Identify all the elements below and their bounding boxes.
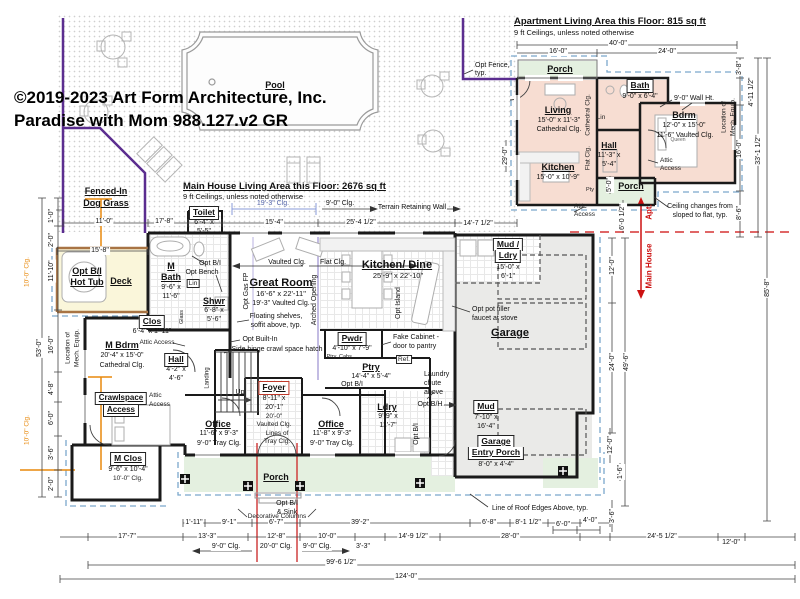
opt-fence-note-2: typ. bbox=[475, 70, 486, 78]
dim-left-6-0: 6'-0" bbox=[48, 410, 56, 426]
flat-clg-note: Flat Clg. bbox=[320, 259, 346, 267]
room-clos: Clos bbox=[139, 315, 165, 329]
floor-plan: ©2019-2023 Art Form Architecture, Inc. P… bbox=[0, 0, 800, 599]
room-shwr: Shwr bbox=[203, 296, 225, 306]
hall-size-1: 4'-2" x bbox=[166, 366, 185, 374]
fake-cabinet-note-2: door to pantry bbox=[393, 343, 436, 351]
room-great-room: Great Room bbox=[250, 277, 313, 289]
dim-top-apt-24: 24'-0" bbox=[657, 48, 677, 56]
room-ldry: Ldry bbox=[377, 402, 397, 412]
attic-access-mbdrm: Attic Access bbox=[139, 339, 174, 346]
room-pwdr: Pwdr bbox=[338, 332, 367, 346]
dim-apt-left-29: 29'-0" bbox=[502, 146, 510, 166]
pool-label: Pool bbox=[265, 80, 285, 90]
dim-row-b-0: 17'-7" bbox=[117, 533, 137, 541]
ceiling-changes-1: Ceiling changes from bbox=[667, 203, 733, 211]
vaulted-clg-note: Vaulted Clg. bbox=[268, 259, 306, 267]
hall-size-2: 4'-6" bbox=[169, 375, 183, 383]
dim-left-3-6: 3'-6" bbox=[48, 445, 56, 461]
great-room-size: 16'-6" x 22'-11" bbox=[256, 290, 306, 298]
great-room-clg: 19'-3" Vaulted Clg. bbox=[252, 300, 309, 308]
fake-cabinet-note-1: Fake Cabinet - bbox=[393, 334, 439, 342]
apt-wall-ht: 9'-0" Wall Ht. bbox=[674, 95, 714, 103]
room-m-bath-1: M bbox=[167, 261, 175, 271]
laundry-chute-2: chute bbox=[424, 380, 441, 388]
lines-of-tray-1: Lines of bbox=[266, 430, 289, 437]
foyer-size-2: 20'-1" bbox=[265, 404, 283, 412]
dim-garage-12-0: 12'-0" bbox=[609, 256, 617, 276]
room-kitchen-dine: Kitchen/ Dine bbox=[362, 259, 432, 271]
apt-pty-note: Pty bbox=[586, 187, 594, 193]
room-office-left: Office bbox=[205, 419, 231, 429]
mud-ldry-size-2: 6'-1" bbox=[501, 273, 515, 281]
room-hot-tub-2: Hot Tub bbox=[70, 277, 103, 287]
dim-apt-porch-6-0: 6'-0 1/2" bbox=[619, 203, 627, 231]
dashed-openings bbox=[455, 235, 586, 455]
loc-mech-left-1: Location of bbox=[64, 332, 71, 364]
ldry-size-1: 9'-9" x bbox=[378, 413, 397, 421]
dim-total-99-6: 99'-6 1/2" bbox=[325, 559, 357, 567]
room-m-clos: M Clos bbox=[110, 452, 146, 466]
opt-builtin-note: Opt Built-In bbox=[242, 336, 277, 344]
dim-right-4-11: 4'-11 1/2" bbox=[748, 77, 756, 108]
attic-access-crawl-2: Access bbox=[149, 401, 170, 408]
mud-size-1: 7'-10" x bbox=[474, 414, 497, 422]
roof-edges-note: Line of Roof Edges Above, typ. bbox=[492, 505, 588, 513]
room-garage-entry-1: Garage bbox=[477, 435, 514, 448]
room-ptry: Ptry bbox=[362, 362, 380, 372]
copyright-line-1: ©2019-2023 Art Form Architecture, Inc. bbox=[14, 88, 327, 107]
mud-ldry-size-1: 15'-0" x bbox=[496, 264, 519, 272]
copyright-line-2: Paradise with Mom 988.127.v2 GR bbox=[14, 111, 288, 130]
dim-garage-24-0: 24'-0" bbox=[609, 352, 617, 372]
foyer-clg-2: Vaulted Clg. bbox=[257, 421, 292, 428]
side-hinge-note: Side hinge crawl space hatch bbox=[231, 346, 322, 354]
attic-access-apt-hall-1: Attic bbox=[660, 157, 673, 164]
apt-queen-bed: Queen bbox=[670, 138, 685, 144]
stairs-landing-label: Landing bbox=[205, 367, 212, 388]
glass-note: Glass bbox=[179, 310, 185, 324]
office-left-size: 11'-6" x 9'-3" bbox=[200, 430, 239, 438]
dim-row-b-8: 3'-3" bbox=[355, 543, 371, 551]
dim-right-16-0: 16'-0" bbox=[736, 139, 744, 159]
arched-opening-note: Arched Opening bbox=[311, 275, 319, 326]
office-left-clg: 9'-0" Tray Clg. bbox=[197, 440, 241, 448]
room-garage: Garage bbox=[491, 327, 529, 339]
dim-right-8-6: 8'-6" bbox=[736, 205, 744, 221]
dim-right-3-8: 3'-8" bbox=[736, 60, 744, 76]
m-bdrm-size: 20'-4" x 15'-0" bbox=[100, 352, 143, 360]
clg-19-3-note: 19'-3" Clg. bbox=[257, 200, 289, 208]
loc-mech-left-2: Mech. Equip. bbox=[73, 329, 80, 367]
dim-right-33-1: 33'-1 1/2" bbox=[755, 134, 763, 166]
ref-note: Ref. bbox=[396, 355, 412, 364]
apt-porch-side: Porch bbox=[618, 181, 644, 191]
apt-room-kitchen: Kitchen bbox=[541, 162, 574, 172]
dim-lr-1-6: 1'-6" bbox=[617, 464, 625, 480]
dim-row-a-3: 39'-2" bbox=[350, 519, 370, 527]
room-lin: Lin bbox=[187, 279, 200, 288]
toilet-size-2: 5'-5" bbox=[197, 228, 211, 236]
dim-row-b-6: 24'-5 1/2" bbox=[646, 533, 678, 541]
apt-room-hall: Hall bbox=[601, 141, 617, 151]
room-foyer: Foyer bbox=[258, 381, 289, 395]
office-right-clg: 9'-0" Tray Clg. bbox=[310, 440, 354, 448]
dim-top-main-17-8: 17'-8" bbox=[154, 218, 174, 226]
dim-top-apt-16: 16'-0" bbox=[548, 48, 568, 56]
floating-shelves-2: soffit above, typ. bbox=[251, 322, 302, 330]
room-garage-entry-2: Entry Porch bbox=[468, 447, 524, 460]
kitchen-dine-size: 25'-9" x 22'-10" bbox=[373, 272, 423, 280]
dim-left-2-0b: 2'-0" bbox=[48, 476, 56, 492]
porch-columns bbox=[180, 466, 568, 503]
dog-grass-label-1: Fenced-In bbox=[85, 186, 128, 196]
opt-fence-note-1: Opt Fence, bbox=[475, 62, 510, 70]
dim-left-11-10: 11'-10" bbox=[48, 259, 56, 282]
m-bath-size-1: 9'-6" x bbox=[161, 284, 180, 292]
apt-bdrm-size: 12'-0" x 15'-0" bbox=[662, 122, 705, 130]
m-bdrm-clg: Cathedral Clg. bbox=[100, 362, 145, 370]
dim-row-b-3: 10'-0" bbox=[317, 533, 337, 541]
dog-grass-label-2: Dog Grass bbox=[83, 198, 129, 208]
opt-gas-fp-note: Opt Gas FP bbox=[243, 273, 251, 310]
pwdr-size: 4'-10" x 7'-9" bbox=[332, 345, 371, 353]
opt-bench-note: Opt Bench bbox=[185, 269, 218, 277]
opt-bi-ptry-note: Opt B/I bbox=[341, 381, 363, 389]
ceiling-changes-2: sloped to flat, typ. bbox=[673, 212, 728, 220]
apt-room-bath: Bath bbox=[627, 79, 654, 93]
room-m-bath-2: Bath bbox=[161, 272, 181, 282]
room-crawlspace-1: Crawlspace bbox=[95, 392, 147, 405]
dim-row-b-1: 13'-3" bbox=[197, 533, 217, 541]
attic-access-apt-kitchen-1: Attic bbox=[574, 203, 587, 210]
dim-total-124: 124'-0" bbox=[394, 573, 418, 581]
pot-filler-note-2: faucet at stove bbox=[472, 315, 518, 323]
opt-island-note: Opt Island bbox=[395, 287, 403, 319]
dim-left-1-0: 1'-0" bbox=[48, 208, 56, 224]
dim-row-a-1: 9'-1" bbox=[221, 519, 237, 527]
lines-of-tray-2: Tray Clg. bbox=[264, 438, 290, 445]
apt-lin: Lin bbox=[597, 114, 606, 121]
apt-flat-clg-v: Flat Clg. bbox=[584, 146, 591, 170]
apt-area-header: Apartment Living Area this Floor: 815 sq… bbox=[514, 17, 706, 28]
dim-clg-row-1: 20'-0" Clg. bbox=[259, 543, 293, 551]
office-right-size: 11'-8" x 9'-3" bbox=[313, 430, 352, 438]
room-crawlspace-2: Access bbox=[103, 404, 139, 417]
shwr-size-1: 6'-8" x bbox=[204, 307, 223, 315]
garage-entry-size: 8'-0" x 4'-4" bbox=[478, 461, 513, 469]
dim-right-85-8: 85'-8" bbox=[764, 278, 772, 298]
apt-hall-size-2: 5'-4" bbox=[602, 161, 616, 169]
apt-cathedral-clg-v: Cathedral Clg. bbox=[584, 94, 591, 136]
room-m-bdrm: M Bdrm bbox=[105, 340, 139, 350]
dim-row-b-2: 12'-8" bbox=[266, 533, 286, 541]
dim-row-b-5: 28'-0" bbox=[500, 533, 520, 541]
stairs bbox=[215, 352, 258, 412]
apt-hall-size-1: 11'-3" x bbox=[598, 152, 621, 160]
dim-top-main-14-7: 14'-7 1/2" bbox=[462, 220, 494, 228]
dim-row-a-4: 6'-8" bbox=[481, 519, 497, 527]
apt-bath-size: 9'-0" x 6'-4" bbox=[622, 93, 657, 101]
dim-top-main-15-4: 15'-4" bbox=[264, 219, 284, 227]
dim-row-b-7: 12'-0" bbox=[721, 539, 741, 547]
clg-9-0-top-note: 9'-0" Clg. bbox=[326, 200, 354, 208]
dim-top-main-11: 11'-0" bbox=[94, 218, 113, 226]
deck-dim: 15'-8" bbox=[90, 247, 110, 255]
dim-apt-porch-5-0: 5'-0" bbox=[606, 177, 614, 193]
opt-bi-sink-1: Opt B/I bbox=[276, 500, 298, 508]
apt-ceilings-note: 9 ft Ceilings, unless noted otherwise bbox=[514, 29, 634, 37]
opt-bi-bath-note: Opt B/I bbox=[199, 260, 221, 268]
apt-arrow-label: Apt. bbox=[646, 204, 655, 220]
opt-bh-note: Opt B/H bbox=[418, 401, 443, 409]
terrain-wall-label: Terrain Retaining Wall bbox=[378, 204, 446, 212]
foyer-size-1: 8'-11" x bbox=[263, 395, 286, 403]
dim-left-4-8: 4'-8" bbox=[48, 380, 56, 396]
apt-porch-top: Porch bbox=[547, 64, 573, 74]
room-hall: Hall bbox=[164, 353, 188, 367]
toilet-size-1: 6'-4" x bbox=[194, 219, 213, 227]
loc-mech-right-1: Location of bbox=[720, 101, 727, 133]
room-toilet: Toilet bbox=[189, 206, 219, 220]
dim-lr-3-6: 3'-6" bbox=[609, 508, 617, 524]
m-clos-size: 9'-6" x 10'-4" bbox=[108, 466, 147, 474]
apt-room-living: Living bbox=[545, 105, 572, 115]
dim-row-a-2: 6'-7" bbox=[268, 519, 284, 527]
dim-left-2-0a: 2'-0" bbox=[48, 232, 56, 248]
dim-clg-row-2: 9'-0" Clg. bbox=[302, 543, 332, 551]
dim-top-apt-40: 40'-0" bbox=[608, 40, 628, 48]
room-porch-main: Porch bbox=[263, 472, 289, 482]
foyer-clg-1: 20'-0" bbox=[266, 413, 283, 420]
stairs-up-label: Up bbox=[236, 389, 245, 397]
pot-filler-note-1: Opt pot filler bbox=[472, 306, 510, 314]
dim-row-a-0: 1'-11" bbox=[184, 519, 203, 527]
clg-10-0-lower: 10'-0" Clg. bbox=[23, 415, 30, 445]
dim-row-a-5: 8'-1 1/2" bbox=[514, 519, 542, 527]
m-bath-size-2: 11'-6" bbox=[162, 293, 179, 301]
apt-kitchen-size: 15'-0" x 10'-9" bbox=[536, 174, 579, 182]
dim-row-a-6: 6'-0" bbox=[555, 521, 571, 529]
main-house-arrow-label: Main House bbox=[646, 244, 655, 289]
dim-garage-49-6: 49'-6" bbox=[623, 352, 631, 372]
laundry-chute-1: Laundry bbox=[424, 371, 449, 379]
room-deck: Deck bbox=[110, 276, 132, 286]
room-mud-ldry-2: Ldry bbox=[495, 250, 521, 263]
apt-living-size: 15'-0" x 11'-3" bbox=[538, 117, 581, 125]
room-hot-tub-1: Opt B/I bbox=[72, 266, 102, 276]
room-mud: Mud bbox=[473, 400, 498, 414]
ptry-size: 14'-4" x 5'-4" bbox=[351, 373, 390, 381]
attic-access-apt-hall-2: Access bbox=[660, 165, 681, 172]
dim-row-b-4: 14'-9 1/2" bbox=[397, 533, 429, 541]
clg-10-0-upper: 10'-0" Clg. bbox=[23, 257, 30, 287]
attic-access-apt-kitchen-2: Access bbox=[574, 211, 595, 218]
dim-lr-12-0: 12'-0" bbox=[607, 435, 615, 455]
room-mud-ldry-1: Mud / bbox=[493, 238, 523, 251]
dim-row-a-7: 4'-0" bbox=[582, 517, 598, 525]
loc-mech-right-2: Mech. Equip. bbox=[729, 98, 736, 136]
dim-top-main-25-4: 25'-4 1/2" bbox=[345, 219, 377, 227]
apt-living-clg: Cathedral Clg. bbox=[537, 126, 582, 134]
laundry-chute-3: above bbox=[424, 389, 443, 397]
attic-access-crawl-1: Attic bbox=[149, 392, 162, 399]
ptry-cabs-note: Ptry. Cabs. bbox=[327, 354, 354, 360]
dim-left-total-53: 53'-0" bbox=[36, 338, 44, 358]
shwr-size-2: 5'-6" bbox=[207, 316, 221, 324]
m-clos-clg: 10'-0" Clg. bbox=[113, 475, 143, 482]
room-office-right: Office bbox=[318, 419, 344, 429]
dim-left-16-0: 16'-0" bbox=[48, 335, 56, 355]
dim-clg-row-0: 9'-0" Clg. bbox=[211, 543, 241, 551]
ldry-size-2: 11'-7" bbox=[379, 422, 396, 430]
clos-size: 6'-4" x 1'-11" bbox=[133, 328, 172, 336]
floating-shelves-1: Floating shelves, bbox=[250, 313, 303, 321]
apt-room-bdrm: Bdrm bbox=[672, 110, 696, 120]
mud-size-2: 16'-4" bbox=[477, 423, 495, 431]
opt-bi-ldry-note: Opt B/I bbox=[413, 423, 421, 445]
